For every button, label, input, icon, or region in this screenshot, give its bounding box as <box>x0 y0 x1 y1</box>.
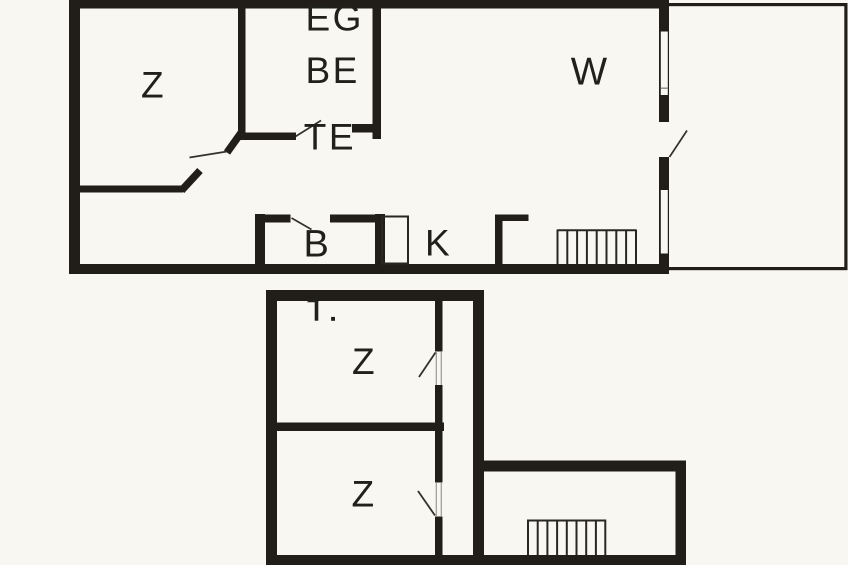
svg-text:B: B <box>304 224 329 266</box>
svg-text:TE: TE <box>304 117 356 158</box>
svg-text:K: K <box>425 223 450 264</box>
svg-text:Z: Z <box>141 65 164 106</box>
svg-text:W: W <box>571 50 608 93</box>
svg-text:BE: BE <box>306 50 360 91</box>
svg-text:EG: EG <box>306 0 364 39</box>
svg-text:Z: Z <box>352 341 375 382</box>
svg-text:Z: Z <box>352 474 375 515</box>
